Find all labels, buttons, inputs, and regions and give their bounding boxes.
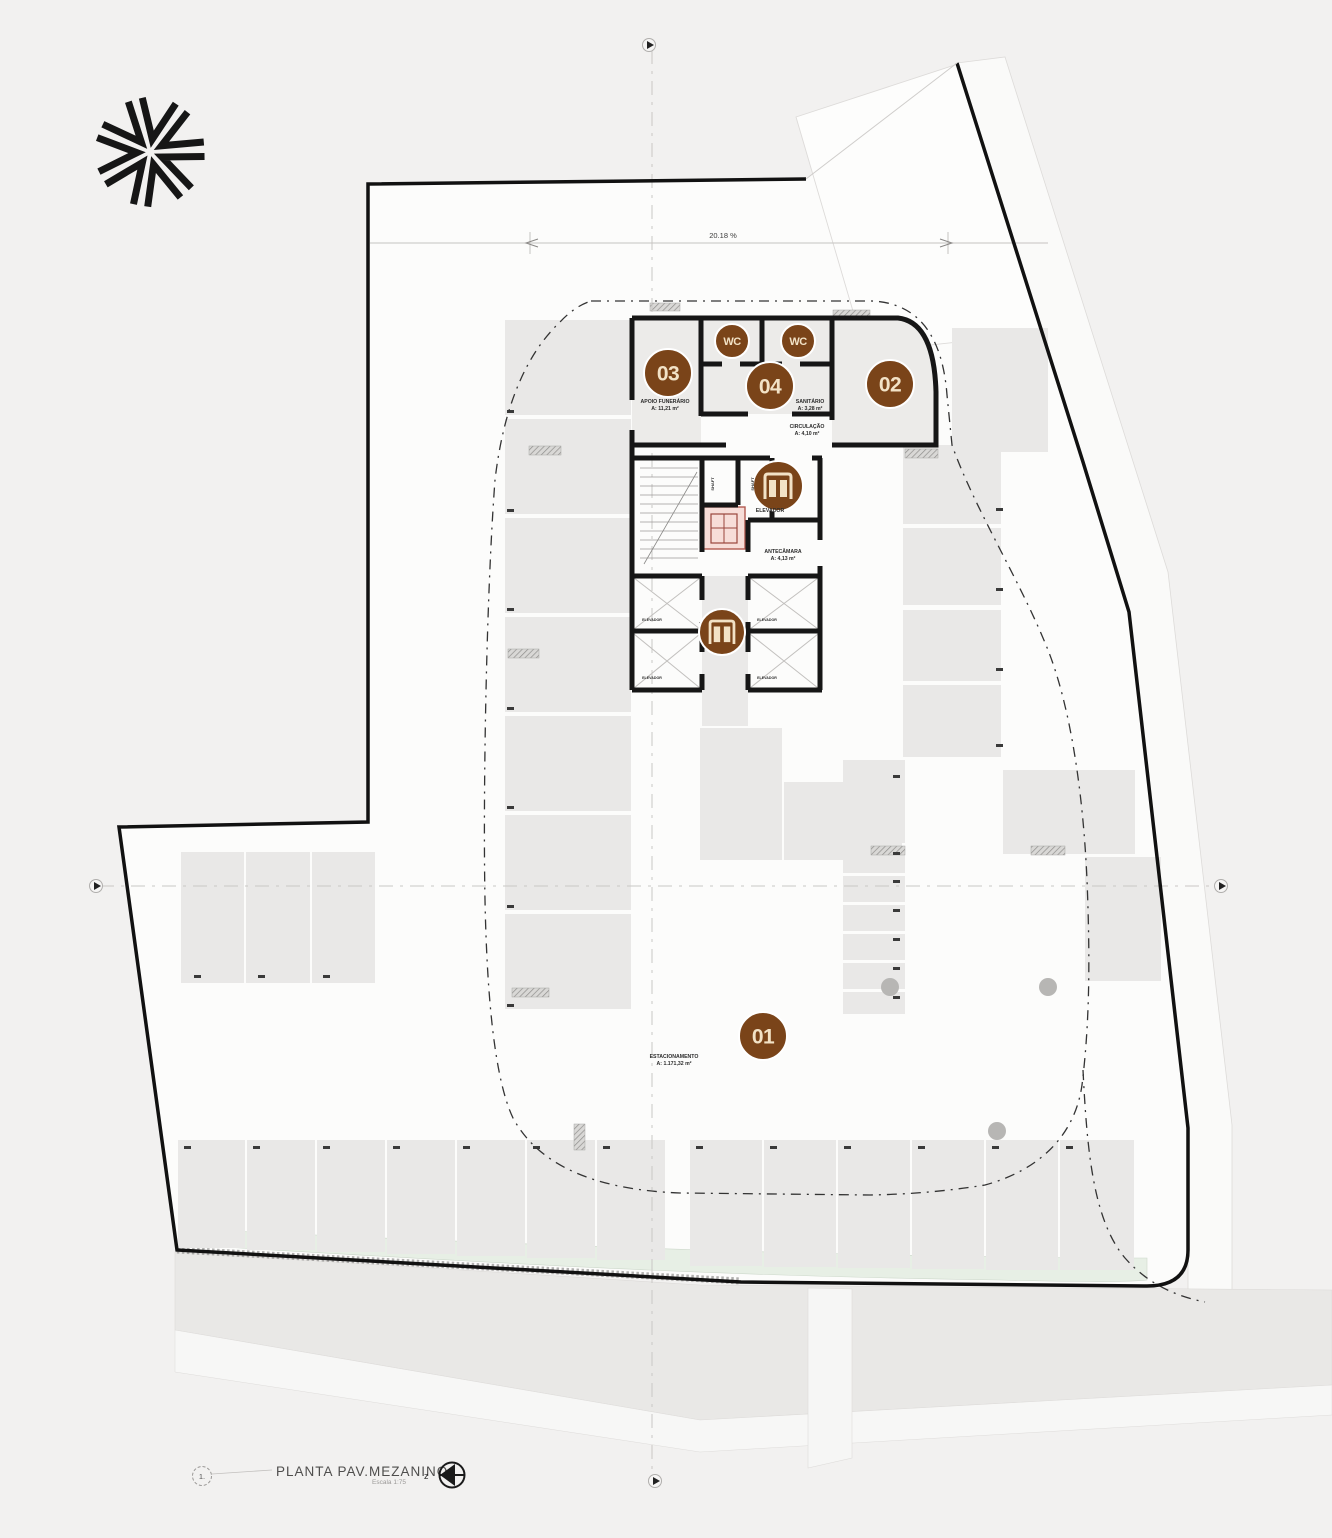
badge-wc-left: WC <box>715 324 749 358</box>
parking-stall <box>843 876 905 902</box>
parking-stall <box>247 1140 315 1250</box>
parking-stall <box>505 815 631 910</box>
parking-stall <box>505 716 631 811</box>
badge-label: 02 <box>879 374 901 397</box>
shaft-label: ELEVADOR <box>642 618 662 622</box>
north-arrow-icon <box>440 1463 465 1488</box>
room-label: ELEVADOR <box>756 508 785 514</box>
stall-number-mark <box>507 509 514 512</box>
parking-stall <box>505 518 631 613</box>
parking-stall <box>903 610 1001 681</box>
pillar-hatch <box>650 303 680 311</box>
stall-number-mark <box>507 806 514 809</box>
stall-number-mark <box>393 1146 400 1149</box>
stall-number-mark <box>893 775 900 778</box>
north-z-label: z <box>424 1471 429 1481</box>
service-elevator <box>703 507 745 549</box>
dimension-label: 20.18 % <box>709 231 737 240</box>
stall-number-mark <box>696 1146 703 1149</box>
stall-number-mark <box>893 909 900 912</box>
stall-number-mark <box>770 1146 777 1149</box>
badge-unit-04: 04 <box>746 362 794 410</box>
badge-wc-right: WC <box>781 324 815 358</box>
shaft-label-vertical: SHAFT <box>710 477 715 491</box>
stall-number-mark <box>507 608 514 611</box>
parking-stall <box>838 1140 910 1268</box>
stall-number-mark <box>507 410 514 413</box>
stall-number-mark <box>918 1146 925 1149</box>
shaft-label: ELEVADOR <box>642 676 662 680</box>
title-block: 1. PLANTA PAV.MEZANINO Escala 1:75 z <box>193 1463 465 1488</box>
stall-number-mark <box>893 880 900 883</box>
parking-stall <box>764 1140 836 1267</box>
elevator-upper-icon <box>753 461 803 511</box>
parking-stall <box>903 685 1001 757</box>
stall-number-mark <box>893 852 900 855</box>
badge-label: 03 <box>657 363 679 386</box>
parking-stall <box>843 760 905 843</box>
stall-number-mark <box>996 588 1003 591</box>
stall-number-mark <box>507 707 514 710</box>
parking-stall <box>505 419 631 514</box>
structural-column <box>988 1122 1006 1140</box>
parking-stall <box>700 728 782 860</box>
pillar-hatch <box>574 1124 585 1150</box>
stall-number-mark <box>992 1146 999 1149</box>
floor-plan-canvas: 20.18 % 03WCWC040201 APO <box>0 0 1332 1538</box>
pillar-hatch <box>508 649 539 658</box>
stall-number-mark <box>194 975 201 978</box>
parking-stall <box>505 320 631 415</box>
parking-stall <box>1003 770 1135 854</box>
badge-unit-03: 03 <box>644 349 692 397</box>
shaft-label: ELEVADOR <box>757 676 777 680</box>
stall-number-mark <box>893 938 900 941</box>
stall-number-mark <box>893 996 900 999</box>
floor-plan-page: 20.18 % 03WCWC040201 APO <box>0 0 1332 1538</box>
stall-number-mark <box>893 967 900 970</box>
parking-stall <box>312 852 375 983</box>
stall-number-mark <box>996 668 1003 671</box>
parking-stall <box>387 1140 455 1254</box>
stall-number-mark <box>507 1004 514 1007</box>
drawing-scale: Escala 1:75 <box>372 1479 406 1486</box>
sun-north-symbol <box>87 91 213 215</box>
pillar-hatch <box>529 446 561 455</box>
stall-number-mark <box>184 1146 191 1149</box>
stall-number-mark <box>996 744 1003 747</box>
badge-unit-02: 02 <box>866 360 914 408</box>
parking-stall <box>527 1140 595 1258</box>
stall-number-mark <box>253 1146 260 1149</box>
parking-stall <box>843 905 905 931</box>
stall-number-mark <box>463 1146 470 1149</box>
stall-number-mark <box>844 1146 851 1149</box>
structural-column <box>881 978 899 996</box>
parking-stall <box>178 1140 245 1248</box>
structural-column <box>1039 978 1057 996</box>
parking-stall <box>246 852 310 983</box>
parking-stall <box>1085 857 1161 981</box>
stall-number-mark <box>996 508 1003 511</box>
pillar-hatch <box>512 988 549 997</box>
axis-marker-bottom <box>649 1475 662 1488</box>
parking-stall <box>843 934 905 960</box>
stall-number-mark <box>323 1146 330 1149</box>
badge-label: WC <box>723 336 741 348</box>
stall-number-mark <box>258 975 265 978</box>
parking-stall <box>912 1140 984 1269</box>
parking-stall <box>903 528 1001 605</box>
sheet-index: 1. <box>199 1472 205 1481</box>
parking-stall <box>181 852 244 983</box>
pillar-hatch <box>905 449 938 458</box>
parking-stall <box>457 1140 525 1256</box>
axis-marker-top <box>643 39 656 52</box>
parking-stall <box>952 328 1048 452</box>
badge-label: WC <box>789 336 807 348</box>
parking-stall <box>843 992 905 1014</box>
pillar-hatch <box>1031 846 1065 855</box>
room-label: ESTACIONAMENTOA: 1.171,32 m² <box>650 1054 699 1067</box>
parking-stall <box>690 1140 762 1266</box>
parking-stall <box>1060 1140 1134 1270</box>
parking-stall <box>505 617 631 712</box>
stall-number-mark <box>1066 1146 1073 1149</box>
parking-stall <box>597 1140 665 1260</box>
elevator-lower-icon <box>699 609 745 655</box>
badge-label: 01 <box>752 1026 775 1049</box>
badge-unit-01: 01 <box>739 1012 787 1060</box>
stall-number-mark <box>507 905 514 908</box>
shaft-label: ELEVADOR <box>757 618 777 622</box>
badge-label: 04 <box>759 376 782 399</box>
parking-stall <box>986 1140 1058 1270</box>
drawing-title: PLANTA PAV.MEZANINO <box>276 1464 448 1479</box>
parking-stall <box>317 1140 385 1252</box>
axis-marker-left <box>90 880 103 893</box>
shaft-label-vertical: SHAFT <box>750 477 755 491</box>
axis-marker-right <box>1215 880 1228 893</box>
street-vertical <box>808 1288 852 1468</box>
stall-number-mark <box>603 1146 610 1149</box>
stall-number-mark <box>323 975 330 978</box>
